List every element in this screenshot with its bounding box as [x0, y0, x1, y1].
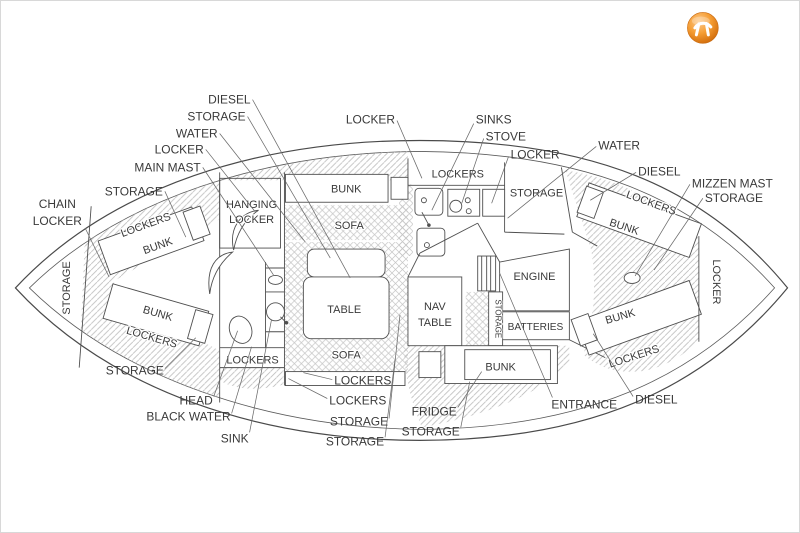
storage-tl-label: STORAGE	[187, 110, 245, 124]
storage2-b-label: STORAGE	[326, 434, 384, 448]
locker-tc-label: LOCKER	[346, 113, 395, 127]
quarter-bunk-label: BUNK	[485, 362, 516, 374]
table-label: TABLE	[327, 304, 361, 316]
storage-strip-label: STORAGE	[494, 299, 503, 338]
main-mast-label: MAIN MAST	[134, 160, 201, 174]
sofa-top-label: SOFA	[335, 220, 365, 232]
head-label: HEAD	[180, 393, 214, 407]
sinks-label: SINKS	[476, 113, 512, 127]
stove-burner-small2	[466, 209, 471, 214]
head-sink-faucet-dot	[285, 321, 289, 325]
table-leaf	[307, 249, 385, 277]
storage1-b-label: STORAGE	[330, 414, 388, 428]
lockers2-b-label: LOCKERS	[329, 393, 386, 407]
diesel-tl-label: DIESEL	[208, 93, 251, 107]
mizzen-mast-label: MIZZEN MAST	[692, 176, 774, 190]
stern-locker-label: LOCKER	[710, 259, 722, 304]
locker-tl-label: LOCKER	[155, 142, 204, 156]
storage2-tl-label: STORAGE	[105, 184, 163, 198]
galley-sink-2-drain	[424, 243, 429, 248]
nav-table-label1: NAV	[424, 301, 446, 313]
mizzen-mast-symbol	[624, 272, 640, 283]
sofa-bottom-label: SOFA	[332, 350, 362, 362]
locker2-tc-label: LOCKER	[511, 147, 560, 161]
hanging-locker-label2: LOCKER	[229, 214, 274, 226]
stove-burner-small1	[465, 198, 470, 203]
entrance-label: ENTRANCE	[551, 397, 617, 411]
storage-bl-label: STORAGE	[106, 364, 164, 378]
boat-layout-diagram: STORAGE LOCKERS BUNK BUNK LOCKERS HANGIN…	[1, 1, 799, 532]
nav-seat	[419, 352, 441, 378]
galley-faucet-dot	[427, 223, 431, 227]
boat-layout-screenshot: STORAGE LOCKERS BUNK BUNK LOCKERS HANGIN…	[0, 0, 800, 533]
hanging-locker-label1: HANGING	[226, 199, 277, 211]
chain-locker-label1: CHAIN	[39, 197, 76, 211]
sink-b-label: SINK	[221, 431, 249, 445]
companion-strip-hatch	[466, 292, 489, 346]
diesel-r-label: DIESEL	[638, 164, 681, 178]
head-lockers-label: LOCKERS	[226, 355, 278, 367]
galley-locker-box	[483, 189, 505, 216]
galley-storage-label: STORAGE	[510, 187, 563, 199]
main-mast-symbol	[268, 275, 282, 284]
water-tl-label: WATER	[176, 126, 218, 140]
batteries-label: BATTERIES	[508, 322, 564, 333]
storage3-b-label: STORAGE	[402, 424, 460, 438]
site-logo	[687, 12, 718, 43]
water-tr-label: WATER	[598, 138, 640, 152]
stove-label: STOVE	[486, 129, 526, 143]
salon-bunk-pillow	[391, 177, 408, 199]
bow-storage-label: STORAGE	[61, 261, 73, 314]
nav-table-label2: TABLE	[418, 317, 452, 329]
lockers1-b-label: LOCKERS	[334, 374, 391, 388]
galley-sink-1	[415, 188, 443, 215]
black-water-label: BLACK WATER	[146, 409, 231, 423]
chain-locker-label2: LOCKER	[33, 214, 82, 228]
galley-lockers-label: LOCKERS	[432, 168, 484, 180]
storage-r-label: STORAGE	[705, 191, 763, 205]
stove-burner-large	[450, 200, 462, 212]
fridge-label: FRIDGE	[412, 404, 457, 418]
salon-bunk-label: BUNK	[331, 183, 362, 195]
logo-highlight	[692, 16, 710, 25]
diesel-b-label: DIESEL	[635, 392, 678, 406]
engine-label: ENGINE	[514, 271, 556, 283]
galley-sink-1-drain	[421, 198, 426, 203]
